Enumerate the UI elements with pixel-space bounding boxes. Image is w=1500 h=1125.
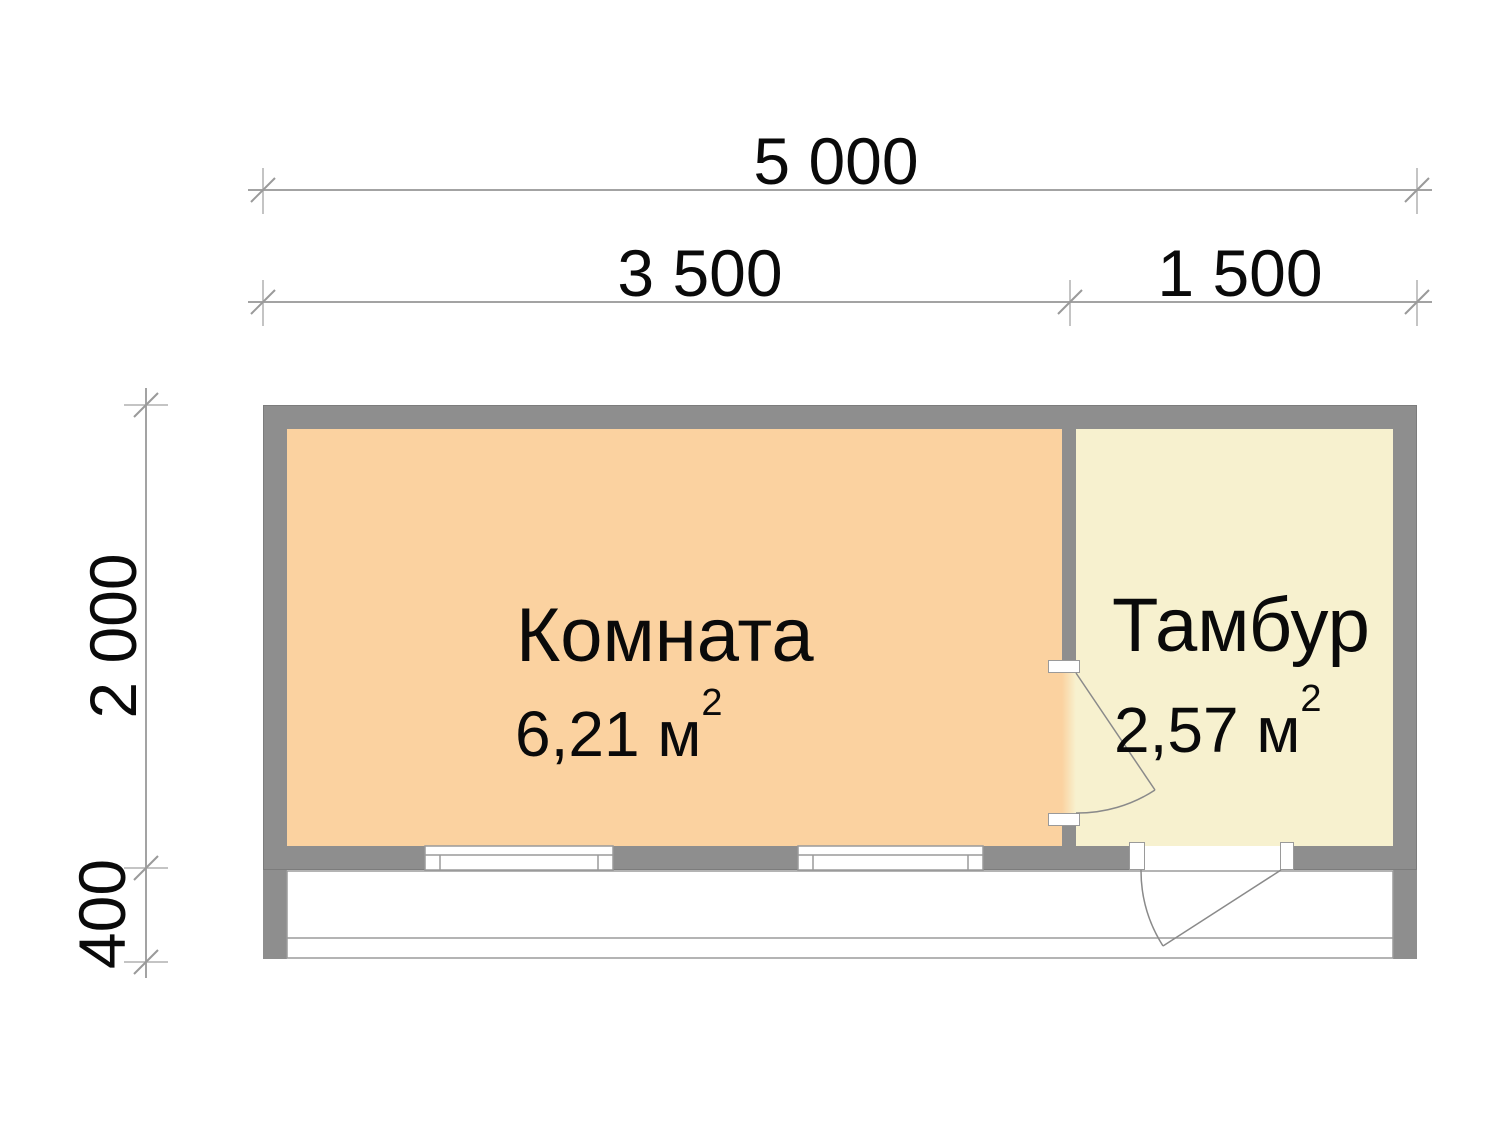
window-symbol-1 bbox=[425, 846, 613, 870]
room-tambur-area-sup: 2 bbox=[1300, 678, 1321, 720]
porch-deck bbox=[287, 871, 1393, 958]
floor-plan: 5 000 3 500 1 500 2 000 400 Комната 6,21… bbox=[0, 0, 1500, 1125]
room-tambur-label: Тамбур bbox=[1112, 588, 1370, 664]
dim-label-total-width: 5 000 bbox=[753, 128, 918, 194]
room-komnata-area: 6,21 м2 bbox=[515, 702, 722, 766]
room-tambur-area-value: 2,57 м bbox=[1114, 694, 1300, 766]
dim-label-room-width: 3 500 bbox=[617, 240, 782, 306]
room-komnata-label: Комната bbox=[516, 598, 814, 674]
room-komnata-area-sup: 2 bbox=[701, 682, 722, 724]
dim-label-tambur-width: 1 500 bbox=[1157, 240, 1322, 306]
window-symbol-2 bbox=[798, 846, 983, 870]
plan-linework bbox=[0, 0, 1500, 1125]
room-komnata-area-value: 6,21 м bbox=[515, 698, 701, 770]
room-tambur-area: 2,57 м2 bbox=[1114, 698, 1321, 762]
dim-label-porch-depth: 400 bbox=[69, 859, 135, 969]
dim-label-building-depth: 2 000 bbox=[80, 553, 146, 718]
